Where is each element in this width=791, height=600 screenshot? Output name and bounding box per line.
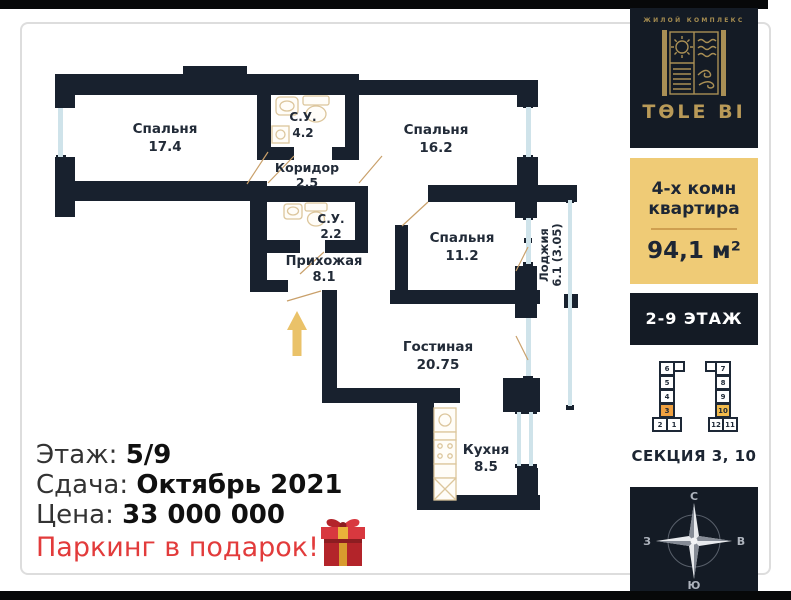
svg-text:2: 2: [658, 421, 663, 429]
brand-tagline: ЖИЛОЙ КОМПЛЕКС: [630, 17, 758, 24]
floor-value: 5/9: [126, 440, 172, 470]
sink-icon: [284, 204, 302, 219]
room-name: С.У.: [289, 110, 316, 124]
completion-line: Сдача: Октябрь 2021: [36, 470, 376, 500]
room-area: 17.4: [148, 139, 181, 155]
counter-icon: [434, 464, 456, 478]
sun-icon: [671, 36, 693, 58]
bottom-black-bar: [0, 591, 791, 600]
site-block: [706, 362, 716, 371]
svg-text:1: 1: [672, 421, 677, 429]
floor-line: Этаж: 5/9: [36, 440, 376, 470]
compass-icon: С В Ю З: [630, 487, 758, 592]
room-area: 2.5: [296, 175, 318, 190]
svg-text:7: 7: [721, 365, 726, 373]
kitchen-fixtures: [434, 408, 456, 500]
apartment-type-line2: квартира: [630, 199, 758, 219]
completion-value: Октябрь 2021: [136, 470, 342, 500]
svg-text:9: 9: [721, 393, 726, 401]
stove-icon: [434, 440, 456, 464]
site-plan-diagram: 6 5 4 3 2 1 7 8 9 10 12 11: [647, 359, 743, 445]
svg-text:3: 3: [665, 407, 670, 415]
compass-north: С: [690, 490, 698, 503]
floor-range: 2-9 ЭТАЖ: [630, 293, 758, 345]
wind-icon: [698, 70, 714, 88]
room-name: Кухня: [463, 442, 510, 458]
room-area: 8.5: [474, 459, 498, 475]
compass-east: В: [737, 535, 745, 548]
floor-range-panel: 2-9 ЭТАЖ: [630, 293, 758, 345]
svg-text:4: 4: [665, 393, 670, 401]
room-name: Прихожая: [286, 254, 363, 269]
room-area: 20.75: [417, 357, 460, 373]
brand-logo-panel: ЖИЛОЙ КОМПЛЕКС TӨLE BI: [630, 8, 758, 148]
room-area: 11.2: [445, 248, 478, 264]
brand-emblem-icon: [661, 29, 727, 99]
compass-west: З: [643, 535, 651, 548]
room-name: С.У.: [317, 212, 344, 226]
svg-text:8: 8: [721, 379, 726, 387]
room-name: Спальня: [133, 121, 198, 137]
site-block: [674, 362, 684, 371]
room-name: Спальня: [404, 122, 469, 138]
room-area: 8.1: [312, 270, 335, 285]
apartment-area: 94,1 м²: [630, 238, 758, 264]
price-label: Цена:: [36, 500, 114, 530]
compass-panel: С В Ю З: [630, 487, 758, 592]
brand-name: TӨLE BI: [630, 101, 758, 123]
room-name: Лоджия: [537, 228, 551, 282]
svg-text:11: 11: [725, 421, 735, 429]
room-area: 16.2: [419, 140, 452, 156]
section-label: СЕКЦИЯ 3, 10: [630, 447, 758, 465]
svg-text:5: 5: [665, 379, 670, 387]
lines-icon: [673, 69, 691, 89]
room-area: 2.2: [320, 227, 341, 241]
apartment-info-panel: 4-х комн квартира 94,1 м²: [630, 158, 758, 284]
room-name: Коридор: [275, 160, 339, 175]
floor-label: Этаж:: [36, 440, 117, 470]
svg-text:12: 12: [711, 421, 721, 429]
room-area: 6.1 (3.05): [550, 223, 564, 286]
counter-icon: [434, 432, 456, 440]
room-name: Гостиная: [403, 339, 473, 355]
completion-label: Сдача:: [36, 470, 128, 500]
room-name: Спальня: [430, 230, 495, 246]
flyer-canvas: { "plan": { "rooms": [ {"name": "Спальня…: [0, 0, 791, 600]
washer-icon: [272, 126, 289, 143]
svg-text:6: 6: [665, 365, 670, 373]
room-area: 4.2: [292, 126, 313, 140]
svg-text:10: 10: [718, 407, 728, 415]
apartment-type-line1: 4-х комн: [630, 179, 758, 199]
waves-icon: [698, 40, 716, 57]
price-value: 33 000 000: [122, 500, 285, 530]
gift-icon: [318, 512, 368, 568]
entrance-arrow-icon: [287, 311, 307, 356]
divider: [651, 228, 737, 230]
